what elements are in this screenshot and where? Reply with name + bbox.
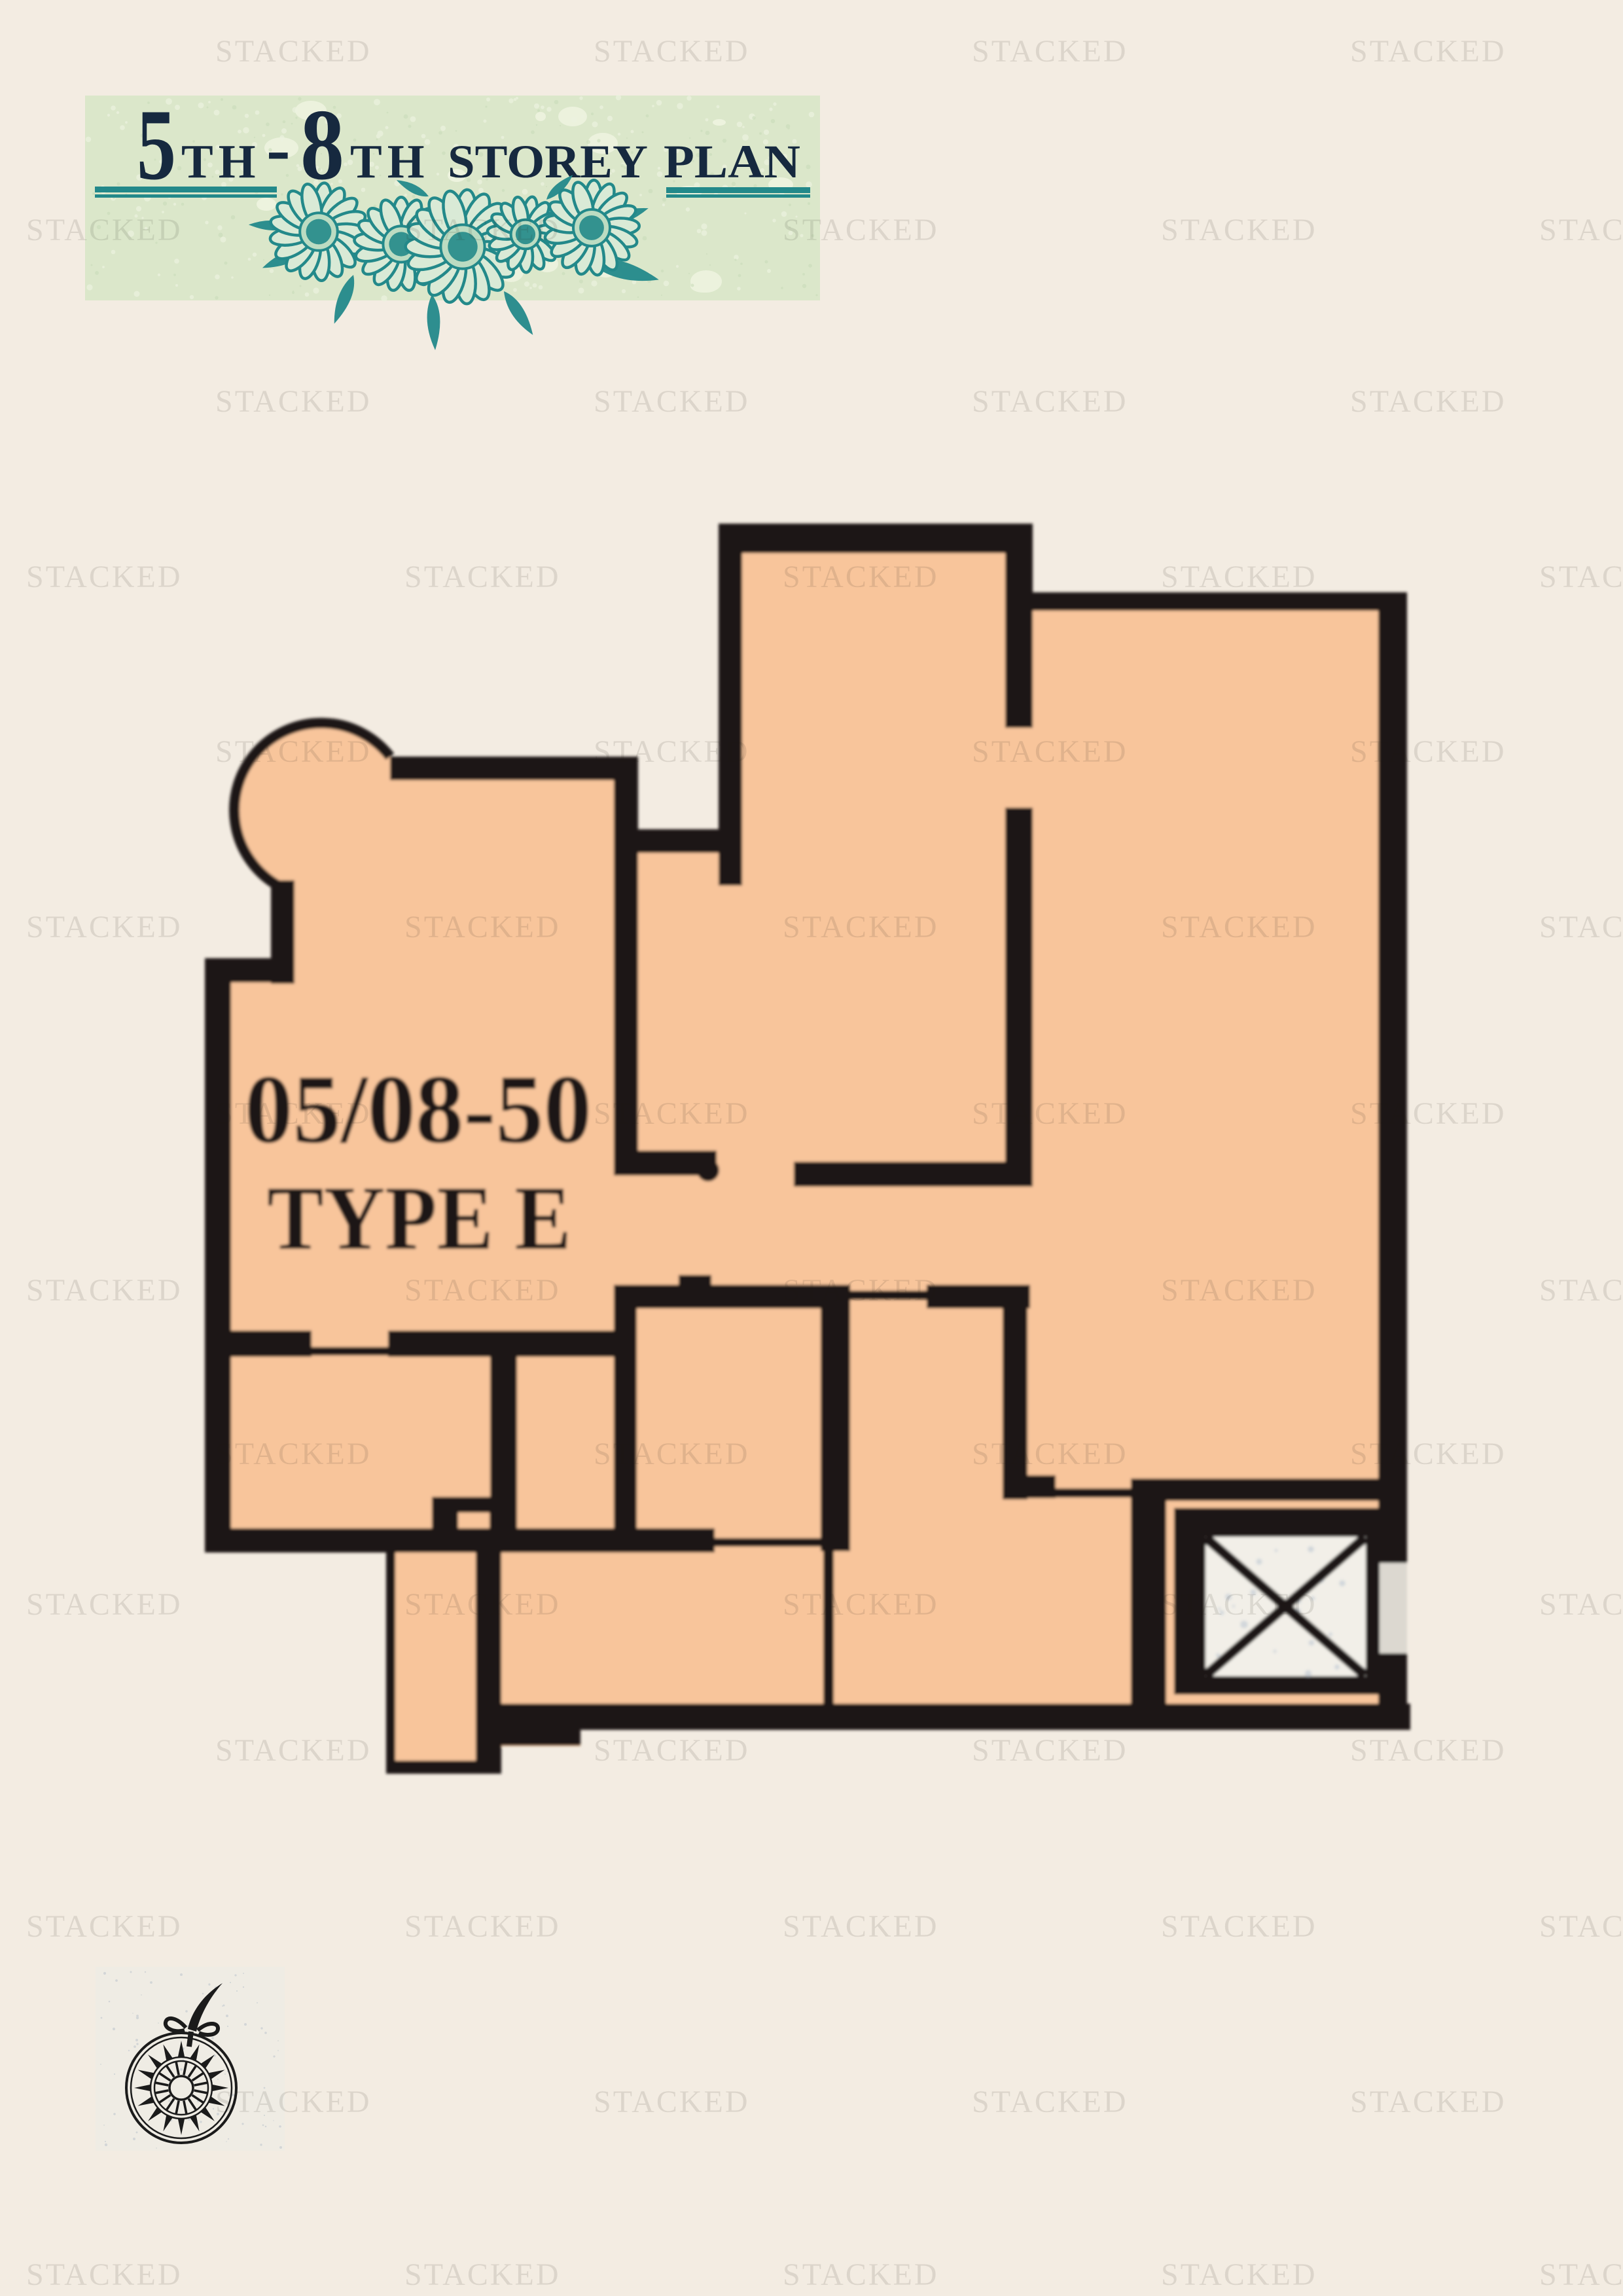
svg-text:STACKED: STACKED xyxy=(215,1437,372,1471)
svg-text:STACKED: STACKED xyxy=(1350,384,1507,419)
svg-text:STACKED: STACKED xyxy=(972,34,1128,69)
svg-text:STACKED: STACKED xyxy=(594,1096,750,1131)
svg-text:STACKED: STACKED xyxy=(783,1273,939,1308)
svg-text:STACKED: STACKED xyxy=(404,213,561,247)
svg-text:STACKED: STACKED xyxy=(1350,1437,1507,1471)
svg-text:STACKED: STACKED xyxy=(783,560,939,594)
svg-text:STACKED: STACKED xyxy=(404,560,561,594)
svg-text:PLAN: PLAN xyxy=(664,135,800,188)
svg-text:STACKED: STACKED xyxy=(594,734,750,769)
svg-text:STACKED: STACKED xyxy=(972,1096,1128,1131)
svg-text:STACKED: STACKED xyxy=(215,1096,372,1131)
svg-text:STACKED: STACKED xyxy=(594,1733,750,1768)
svg-text:STACKED: STACKED xyxy=(1161,910,1317,944)
svg-text:STACKED: STACKED xyxy=(215,384,372,419)
svg-text:STACKED: STACKED xyxy=(594,2085,750,2119)
svg-text:STACKED: STACKED xyxy=(26,910,183,944)
svg-text:STACKED: STACKED xyxy=(1161,2257,1317,2292)
svg-text:TH: TH xyxy=(350,135,429,188)
svg-text:STACKED: STACKED xyxy=(1161,1909,1317,1944)
svg-text:STACKED: STACKED xyxy=(972,734,1128,769)
svg-text:STACKED: STACKED xyxy=(594,1437,750,1471)
svg-text:STACKED: STACKED xyxy=(404,1909,561,1944)
svg-text:STACKED: STACKED xyxy=(1539,1909,1623,1944)
svg-text:STACKED: STACKED xyxy=(404,910,561,944)
svg-text:STACKED: STACKED xyxy=(26,213,183,247)
svg-text:STACKED: STACKED xyxy=(1539,560,1623,594)
svg-text:-: - xyxy=(266,109,291,188)
svg-text:STACKED: STACKED xyxy=(404,1587,561,1622)
svg-text:STACKED: STACKED xyxy=(1161,1273,1317,1308)
svg-text:STACKED: STACKED xyxy=(215,34,372,69)
svg-text:STACKED: STACKED xyxy=(1350,34,1507,69)
svg-text:STACKED: STACKED xyxy=(594,384,750,419)
svg-text:STACKED: STACKED xyxy=(1539,1587,1623,1622)
svg-text:STACKED: STACKED xyxy=(404,1273,561,1308)
svg-text:5: 5 xyxy=(137,88,176,201)
svg-text:STACKED: STACKED xyxy=(972,2085,1128,2119)
svg-text:STACKED: STACKED xyxy=(1539,1273,1623,1308)
svg-text:STACKED: STACKED xyxy=(1539,213,1623,247)
svg-text:STACKED: STACKED xyxy=(783,1909,939,1944)
svg-text:STACKED: STACKED xyxy=(26,560,183,594)
svg-text:STACKED: STACKED xyxy=(215,1733,372,1768)
svg-text:STACKED: STACKED xyxy=(972,384,1128,419)
svg-text:STACKED: STACKED xyxy=(26,1587,183,1622)
svg-text:STACKED: STACKED xyxy=(404,2257,561,2292)
svg-text:STACKED: STACKED xyxy=(1350,2085,1507,2119)
svg-text:STACKED: STACKED xyxy=(1539,2257,1623,2292)
svg-text:STACKED: STACKED xyxy=(215,2085,372,2119)
svg-text:STACKED: STACKED xyxy=(26,2257,183,2292)
svg-text:TH: TH xyxy=(181,135,260,188)
svg-text:STACKED: STACKED xyxy=(1539,910,1623,944)
svg-text:STACKED: STACKED xyxy=(215,734,372,769)
svg-text:TYPE E: TYPE E xyxy=(267,1168,571,1269)
svg-text:STACKED: STACKED xyxy=(972,1733,1128,1768)
svg-text:STACKED: STACKED xyxy=(26,1909,183,1944)
svg-text:STACKED: STACKED xyxy=(783,1587,939,1622)
svg-text:STACKED: STACKED xyxy=(1161,1587,1317,1622)
svg-text:STACKED: STACKED xyxy=(783,213,939,247)
svg-text:STACKED: STACKED xyxy=(1161,560,1317,594)
svg-text:STACKED: STACKED xyxy=(972,1437,1128,1471)
svg-text:STOREY: STOREY xyxy=(448,135,648,188)
svg-text:STACKED: STACKED xyxy=(26,1273,183,1308)
svg-text:STACKED: STACKED xyxy=(1350,734,1507,769)
svg-text:STACKED: STACKED xyxy=(783,2257,939,2292)
svg-text:STACKED: STACKED xyxy=(1350,1733,1507,1768)
svg-text:STACKED: STACKED xyxy=(1350,1096,1507,1131)
svg-text:STACKED: STACKED xyxy=(783,910,939,944)
svg-text:STACKED: STACKED xyxy=(594,34,750,69)
svg-text:STACKED: STACKED xyxy=(1161,213,1317,247)
